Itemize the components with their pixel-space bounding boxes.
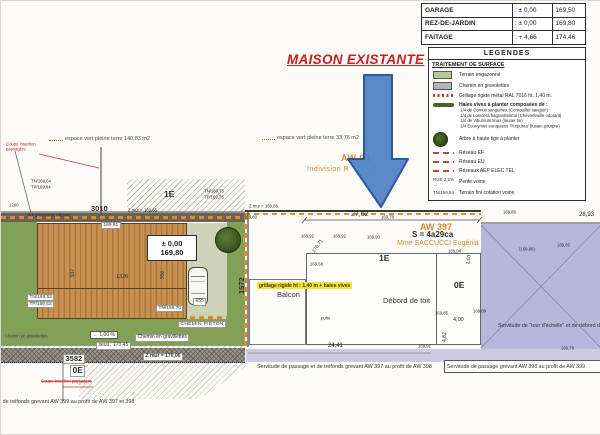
level-box: ± 0,00 169,80	[147, 235, 197, 261]
parcel-aw94-owner: Indivision R	[307, 166, 349, 174]
site-plan-canvas: 655 169,91 espace vert pleine terre 140,…	[0, 0, 600, 435]
spot-169-78: 169,78	[381, 216, 394, 221]
floor-1e-right: 1E	[379, 254, 389, 264]
section-leader-top	[39, 154, 99, 168]
row-absolute-level: 169,50	[552, 4, 585, 17]
row-relative-level: : ± 0,00	[512, 18, 553, 31]
legend-title: LEGENDES	[429, 48, 585, 60]
chemin-gravillettes-label: Chemin en gravillettes	[135, 334, 189, 342]
hedge-species: 1/4 de Viburnum tinus (laurier tin)	[460, 118, 572, 123]
legend-item: Arbre à haute tige à planter	[429, 130, 585, 148]
network-eu-line-icon	[433, 161, 454, 163]
legend-item-label: Pente voirie	[459, 179, 485, 185]
tp-169-52-label: TP/169,52	[27, 301, 54, 308]
table-row: FAITAGE : + 4,66 174,46	[422, 31, 585, 44]
legend-item: Réseaux AEP ELEC TEL	[429, 166, 585, 175]
row-absolute-level: 169,80	[552, 18, 585, 31]
spot-169-92b: 169,92	[333, 235, 346, 240]
legend-item-label: Haies vives à planter composées de :	[459, 102, 548, 108]
spot-169-91-chip: 169,91	[101, 222, 121, 229]
servitude-aw397-label: Servitude de passage et de tréfonds grev…	[257, 364, 432, 370]
car-windshield	[191, 276, 205, 282]
section-label-bottom: Coupe insertion paysagère	[41, 380, 92, 385]
dimension-4-82: 4,82	[443, 332, 449, 342]
fence-note-highlight: grillage rigide ht : 1,40 m + haies vive…	[257, 282, 352, 289]
point-655-chip: 655	[193, 298, 206, 306]
tp-169-64-label: TP/169,64	[31, 186, 51, 191]
lawn-swatch-icon	[433, 71, 452, 79]
legend-item: Réseau EU	[429, 157, 585, 166]
hedge-species: 1/4 de Lonicera fragrantissima (Chèvrefe…	[460, 113, 572, 118]
network-aep-line-icon	[433, 170, 454, 172]
fence-dotted-prefix-left	[49, 140, 63, 141]
house-right-division-line	[436, 253, 437, 345]
spot-169-92a: 169,92	[301, 235, 314, 240]
spot-169-93: 169,93	[367, 236, 380, 241]
parcel-aw94-owner-end: T	[372, 166, 376, 174]
spot-169-89: 169,89	[473, 310, 486, 315]
legend-item: Grillage rigide métal RAL 7016 ht. 1,40 …	[429, 91, 585, 100]
legend-item-label: Réseau EF	[459, 150, 484, 156]
level-absolute: 169,80	[161, 248, 184, 257]
legend-item: RUE 2,5% → Pente voirie	[429, 175, 585, 188]
legend-item-label: Grillage rigide métal RAL 7016 ht. 1,40 …	[459, 93, 552, 99]
parcel-aw397-owner: Mme SACCUCCI Eugénia	[397, 240, 479, 248]
servitude-aw398-box: Servitude de passage grevant AW 398 au p…	[444, 360, 600, 373]
legend-item-label: Chemin en gravolettes	[459, 83, 509, 89]
spot-169-94: 169,94	[448, 250, 461, 255]
legend-item: Réseau EF	[429, 148, 585, 157]
tn-169-75-label: TN/169,75	[204, 190, 224, 195]
point-1260: 1260	[9, 204, 18, 209]
lawn-left-column	[1, 222, 37, 346]
spot-169-86-lavender: 169,86	[503, 211, 516, 216]
espace-vert-left-label: espace vert pleine terre 140,83 m2	[65, 136, 150, 142]
z-mur-169-85-label: Z mur = 169,85	[128, 209, 157, 214]
tp-169-75-label: TP/169,75	[204, 196, 224, 201]
espace-vert-right-label: espace vert pleine terre 33,76 m2	[277, 135, 359, 141]
floor-0e-right: 0E	[454, 281, 464, 291]
balcony-label: Balcon	[277, 291, 300, 299]
table-row: GARAGE : ± 0,00 169,50	[422, 4, 585, 18]
section-label-top: Coupe insertion paysagère	[6, 143, 40, 153]
point-1572: 1572	[238, 277, 246, 294]
gravel-swatch-icon	[433, 82, 452, 90]
spot-169-85b: 169,85	[435, 312, 448, 317]
level-relative: ± 0,00	[162, 239, 183, 248]
tn-level-icon: TN/169,64	[433, 190, 454, 195]
legend-item-label: Réseaux AEP ELEC TEL	[459, 168, 515, 174]
roof-overhang-label: Débord de toit	[383, 297, 430, 305]
point-3010: 3010	[91, 205, 108, 213]
legend-item-label: Terrain engazonné	[459, 72, 500, 78]
tree-icon	[215, 227, 241, 253]
z-mur-169-86-label: Z mur = 169,86	[249, 205, 278, 210]
fence-dotted-prefix-right	[262, 139, 275, 140]
floor-0e-left: 0E	[70, 365, 85, 377]
slope-1pct-box: ← 1,00 %	[90, 331, 118, 339]
legend-item-label: Arbre à haute tige à planter	[459, 136, 520, 142]
dimension-24-41: 24,41	[328, 343, 343, 350]
spot-169-85-lavender: 169,85	[557, 244, 570, 249]
dimension-950: 950	[161, 271, 167, 279]
hedge-species-list: 1/4 de Cornus sanguinea (Cornouiller san…	[429, 108, 573, 129]
hedge-species: 1/4 Euonymus europaeus 'Purpurea' (fusai…	[460, 123, 572, 128]
spot-169-68: 169,68	[310, 263, 323, 268]
floor-1e-left: 1E	[164, 190, 174, 200]
tn-169-64-label: TN/169,64	[31, 180, 51, 185]
dimension-27-62: 27,62	[351, 211, 369, 219]
spot-169-91b: 169,91	[418, 345, 431, 350]
fence-dotted-line-icon	[433, 94, 454, 97]
legend-item-label: Réseau EU	[459, 159, 485, 165]
hedge-bar-icon	[433, 103, 454, 107]
tree-circle-icon	[433, 132, 448, 147]
seuil-170-45-label: seuil : 170,45	[96, 342, 131, 350]
legend-panel: LEGENDES TRAITEMENT DE SURFACE Terrain e…	[428, 47, 586, 201]
legend-item: Chemin en gravolettes	[429, 80, 585, 91]
row-relative-level: : ± 0,00	[512, 4, 553, 17]
house-inner-line	[37, 288, 187, 289]
legend-section-title: TRAITEMENT DE SURFACE	[429, 60, 585, 69]
z-mur-170-06-label: Z mur = 170,06	[143, 353, 183, 361]
servitude-tour-echelle-label: Servitude de "tour d'échelle" et de débo…	[498, 324, 600, 330]
legend-item: Terrain engazonné	[429, 69, 585, 80]
point-3582: 3582	[63, 354, 85, 364]
tn-169-70-label: TN/169,70	[156, 305, 183, 312]
spot-169-90-paren: (169,90)	[519, 248, 535, 253]
legend-item: Haies vives à planter composées de :	[429, 100, 585, 108]
car-rear-window	[191, 293, 205, 297]
spot-169-80: 169,80	[244, 216, 257, 221]
legend-item: TN/169,64 Terrain fini cotation voirie	[429, 188, 585, 197]
chemin-pieton-label: CHEMIN PIETON	[178, 321, 226, 328]
spot-169-79: 169,79	[561, 347, 574, 352]
row-label: FAITAGE	[422, 34, 512, 41]
parcel-aw397-area: S = 4a29ca	[412, 231, 453, 240]
row-absolute-level: 174,46	[552, 31, 585, 44]
servitude-aw398-label: Servitude de passage grevant AW 398 au p…	[445, 364, 585, 370]
hedge-species: 1/4 de Cornus sanguinea (Cornouiller san…	[460, 108, 572, 113]
table-row: REZ-DE-JARDIN : ± 0,00 169,80	[422, 18, 585, 32]
neighbour-plot-lavender	[481, 224, 600, 349]
spot-170-71: 170,71	[312, 239, 325, 254]
elevation-table: GARAGE : ± 0,00 169,50 REZ-DE-JARDIN : ±…	[421, 3, 586, 45]
row-label: REZ-DE-JARDIN	[422, 20, 512, 27]
puits-label: puits	[321, 317, 330, 322]
row-relative-level: : + 4,66	[512, 31, 553, 44]
row-label: GARAGE	[422, 7, 512, 14]
parcel-aw94-number: AW 94	[341, 153, 371, 163]
road-band-dark	[1, 348, 245, 363]
dimension-917: 917	[71, 269, 77, 277]
slope-arrow-icon: RUE 2,5% →	[433, 177, 459, 187]
mur-preexistant-label: Mur préexistant mitoyen	[27, 214, 71, 219]
chemin-gravolettes-label: Chemin en gravolettes	[5, 335, 48, 340]
dimension-4-00: 4,00	[453, 317, 464, 323]
hatched-zone-bottom	[79, 363, 251, 399]
servitude-aw399-label: Servitude de passage et de tréfonds grev…	[0, 399, 134, 405]
legend-item-label: Terrain fini cotation voirie	[459, 190, 514, 196]
dimension-28-93: 28,93	[579, 212, 594, 219]
dimension-1326: 1326	[116, 274, 128, 280]
network-ef-line-icon	[433, 152, 454, 154]
maison-existante-title: MAISON EXISTANTE	[287, 52, 424, 67]
